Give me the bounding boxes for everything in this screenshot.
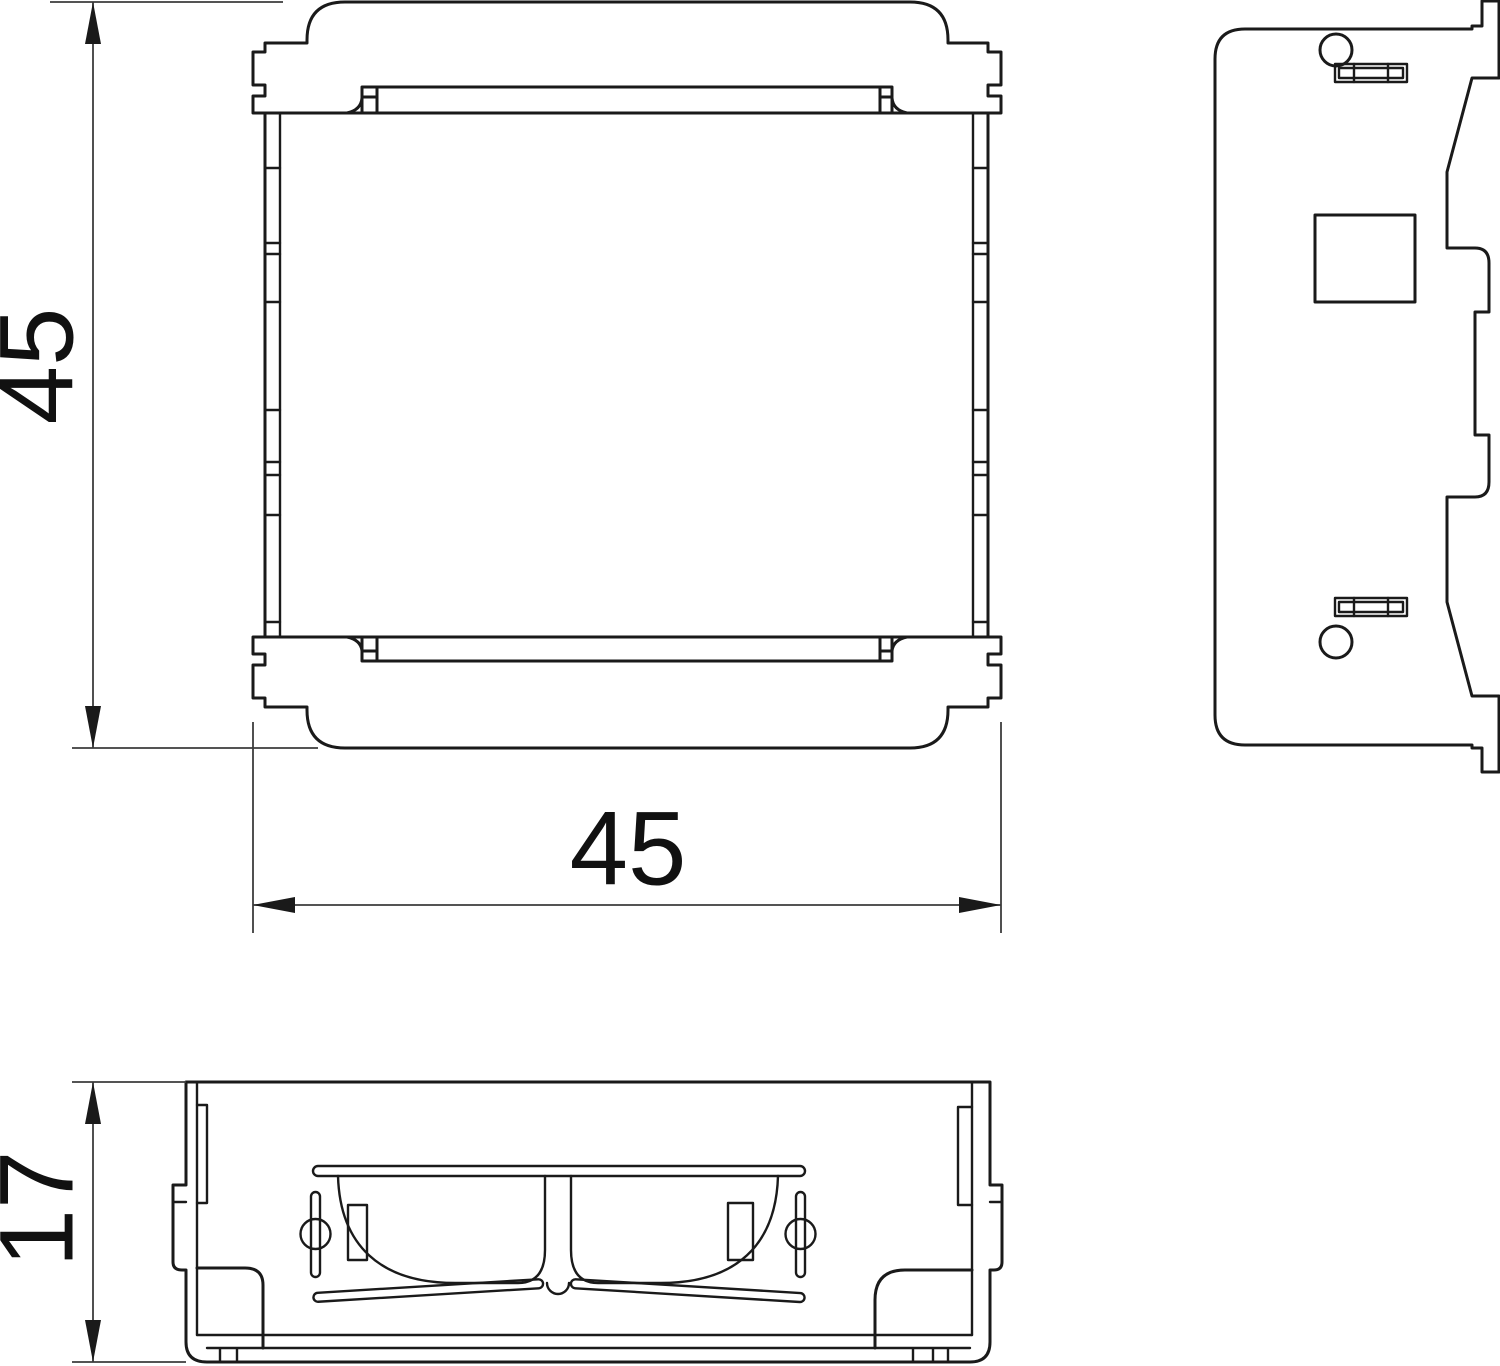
side-top-slot	[1335, 64, 1407, 82]
drawing-canvas	[0, 0, 1500, 1366]
bottom-height-label: 17	[0, 1151, 90, 1268]
bottom-rim-rects	[197, 1105, 972, 1205]
bottom-right-post	[875, 1270, 972, 1348]
side-outline	[1215, 1, 1499, 772]
bottom-rim	[197, 1335, 972, 1362]
bottom-left-pin	[301, 1192, 331, 1277]
bottom-spring-bar	[313, 1166, 805, 1176]
side-view	[1215, 1, 1499, 772]
arrowhead-down-icon	[85, 1320, 101, 1362]
side-bottom-hole	[1320, 626, 1352, 658]
front-bottom-plate	[347, 637, 907, 661]
arrowhead-left-icon	[253, 897, 295, 913]
side-top-hole	[1320, 34, 1352, 66]
front-width-label: 45	[570, 797, 687, 902]
arrowhead-up-icon	[85, 2, 101, 44]
arrowhead-down-icon	[85, 706, 101, 748]
front-side-strips	[280, 113, 973, 637]
bottom-spring-left-wing	[338, 1176, 545, 1283]
arrowhead-right-icon	[959, 897, 1001, 913]
technical-drawing-page: 45 45 17	[0, 0, 1500, 1366]
front-view	[253, 2, 1001, 748]
bottom-spring-center-bump	[547, 1283, 569, 1294]
front-strip-ticks	[265, 168, 988, 622]
bottom-outline	[173, 1082, 1002, 1362]
side-window-opening	[1315, 215, 1415, 302]
side-bottom-slot	[1335, 598, 1407, 616]
front-top-plate	[347, 87, 907, 113]
front-height-label: 45	[0, 308, 90, 425]
bottom-view	[173, 1082, 1002, 1362]
arrowhead-up-icon	[85, 1082, 101, 1124]
bottom-right-pin	[786, 1192, 816, 1277]
bottom-spring-right-wing	[571, 1176, 778, 1283]
